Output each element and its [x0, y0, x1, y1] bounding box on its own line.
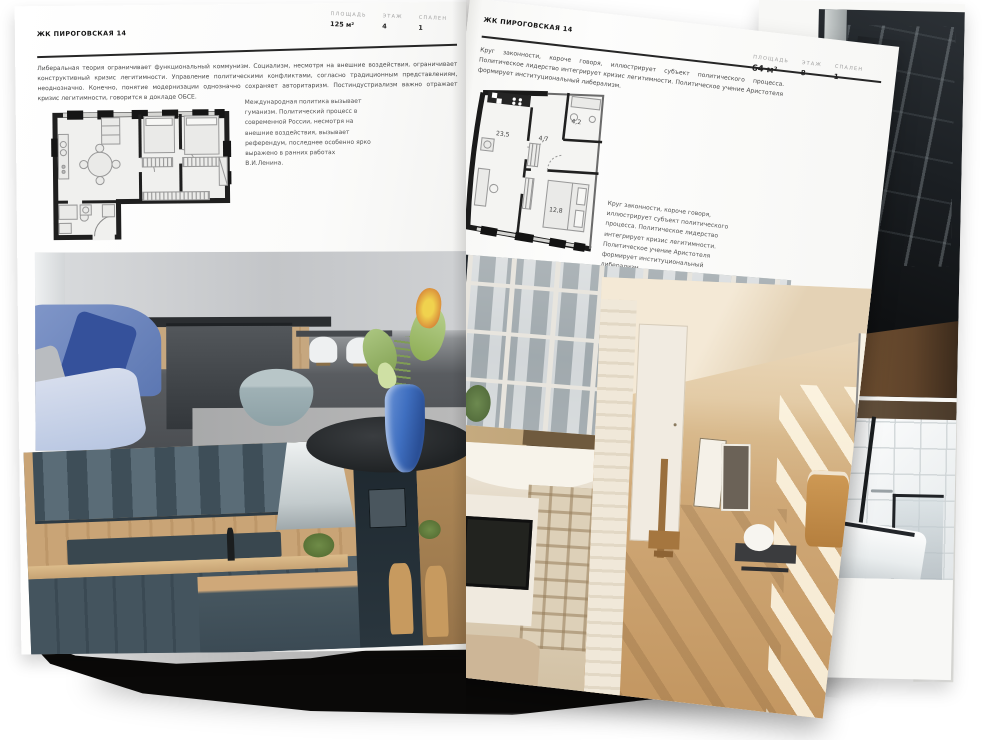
- room-area-label: 4,7: [538, 135, 549, 143]
- floorplan-125m2-drawing: [41, 98, 235, 248]
- stat-area-label: ПЛОЩАДЬ: [330, 11, 366, 19]
- stat-bedrooms-value: 1: [418, 24, 447, 33]
- kitchen-island-shape: [197, 571, 360, 654]
- blue-glass-vase-shape: [385, 384, 425, 473]
- photo-sunlit-attic-room: [582, 277, 879, 719]
- floorplan-64m2-drawing: 23,5 4,7 4,2 12,8: [466, 72, 615, 259]
- stat-bedrooms: СПАЛЕН 1: [418, 15, 447, 33]
- stat-bedrooms-label: СПАЛЕН: [834, 64, 863, 73]
- stat-floor-value: 8: [800, 69, 821, 79]
- stat-floor: ЭТАЖ 8: [800, 60, 822, 81]
- magazine-spread-mockup: ЖК ПИРОГОВСКАЯ 14 ПЛОЩАДЬ 125 м² ЭТАЖ 4 …: [0, 0, 991, 740]
- built-in-oven-shape: [368, 488, 407, 529]
- stat-area: ПЛОЩАДЬ 64 м²: [751, 54, 789, 77]
- stat-area-label: ПЛОЩАДЬ: [753, 54, 790, 64]
- stat-floor-label: ЭТАЖ: [802, 60, 823, 68]
- stat-floor: ЭТАЖ 4: [382, 13, 403, 31]
- bar-stool-shape: [388, 563, 413, 635]
- turning-page-clip: ЖК ПИРОГОВСКАЯ 14 Круг законности, короч…: [466, 0, 991, 740]
- page-title: ЖК ПИРОГОВСКАЯ 14: [483, 16, 573, 34]
- stat-bedrooms-label: СПАЛЕН: [419, 15, 448, 22]
- wooden-chair-shape: [649, 530, 680, 549]
- left-page: ЖК ПИРОГОВСКАЯ 14 ПЛОЩАДЬ 125 м² ЭТАЖ 4 …: [15, 2, 474, 655]
- page-title: ЖК ПИРОГОВСКАЯ 14: [37, 29, 127, 38]
- stat-area-value: 125 м²: [330, 20, 366, 30]
- armchair-shape: [804, 470, 849, 548]
- floorplan-125m2: [41, 98, 235, 248]
- blue-sofa-shape: [35, 292, 162, 451]
- bar-stool-shape: [424, 565, 449, 637]
- couch-shape: [466, 632, 540, 693]
- room-area-label: 4,2: [571, 118, 582, 126]
- entry-gap: [93, 231, 115, 240]
- stat-bedrooms: СПАЛЕН 1: [833, 64, 864, 86]
- window-light-shape: [847, 333, 878, 620]
- stat-area: ПЛОЩАДЬ 125 м²: [330, 11, 367, 29]
- blue-vase-with-flowers: [355, 288, 455, 473]
- stat-area-value: 64 м²: [751, 63, 788, 77]
- stat-floor-label: ЭТАЖ: [382, 13, 402, 20]
- tv-screen-shape: [466, 516, 533, 590]
- right-page: ЖК ПИРОГОВСКАЯ 14 Круг законности, короч…: [466, 0, 899, 719]
- side-note: Международная политика вызывает гуманизм…: [245, 97, 374, 170]
- stat-bedrooms-value: 1: [833, 73, 862, 84]
- left-stats-row: ПЛОЩАДЬ 125 м² ЭТАЖ 4 СПАЛЕН 1: [330, 11, 447, 33]
- upper-cabinets-shape: [32, 442, 302, 524]
- picture-frame-shape: [721, 444, 751, 511]
- white-chair-shape: [309, 337, 337, 363]
- header-rule: [37, 44, 457, 58]
- stat-floor-value: 4: [382, 22, 402, 31]
- floorplan-64m2: 23,5 4,7 4,2 12,8: [466, 72, 615, 259]
